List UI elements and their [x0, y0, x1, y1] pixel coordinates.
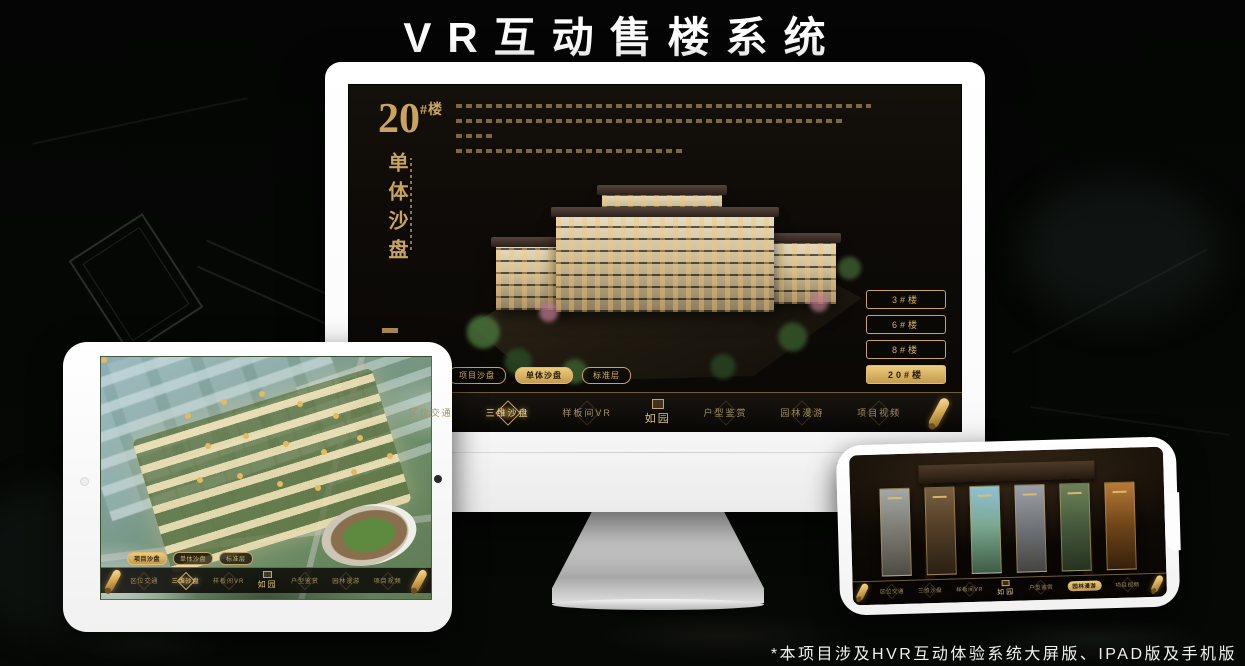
tab-project-sandtable[interactable]: 项目沙盘 — [448, 367, 506, 384]
scene-panel-exterior[interactable] — [969, 485, 1001, 574]
brand-logo-text: 如园 — [645, 410, 671, 426]
block-number-suffix: #楼 — [420, 103, 443, 118]
view-tabs: 项目沙盘 单体沙盘 标准层 — [448, 367, 631, 384]
floor-button-6[interactable]: 6#楼 — [866, 315, 946, 334]
tablet-brand-logo-text: 如园 — [258, 579, 278, 590]
tablet-nav-item-showroom-vr[interactable]: 样板间VR — [213, 576, 244, 585]
tablet-brand-logo[interactable]: 如园 — [258, 571, 278, 590]
map-terrain-blob — [1020, 180, 1220, 320]
map-road-line — [32, 97, 248, 145]
brand-seal-icon — [652, 399, 664, 409]
scene-panel-clubhouse[interactable] — [1104, 481, 1136, 570]
phone-brand-logo[interactable]: 如园 — [997, 579, 1015, 596]
tablet-nav-item-project-video[interactable]: 项目视频 — [374, 576, 402, 585]
phone-navbar: 区位交通 三维沙盘 样板间VR 如园 户型鉴赏 园林漫游 项目视频 — [852, 573, 1166, 603]
tablet-brand-seal-icon — [263, 571, 272, 578]
panorama-gate-beam — [918, 461, 1094, 484]
block-subtitle-english — [410, 158, 412, 250]
tablet-nav-item-3d-sandtable[interactable]: 三维沙盘 — [172, 576, 200, 585]
tablet-scroll-menu-icon-left[interactable] — [104, 568, 122, 593]
scene-panel-courtyard[interactable] — [879, 488, 911, 577]
phone-nav-item-location[interactable]: 区位交通 — [880, 587, 904, 596]
tablet-tab-standard-floor[interactable]: 标准层 — [219, 552, 253, 565]
map-plaque — [69, 213, 204, 355]
floor-button-3[interactable]: 3#楼 — [866, 290, 946, 309]
nav-item-garden-roam[interactable]: 园林漫游 — [780, 406, 824, 419]
phone-brand-logo-text: 如园 — [997, 586, 1015, 596]
tablet-tab-single-sandtable[interactable]: 单体沙盘 — [173, 552, 213, 565]
tablet-scroll-menu-icon-right[interactable] — [410, 568, 428, 593]
phone-notch — [1164, 492, 1181, 550]
map-road-line — [1031, 406, 1229, 436]
nav-item-location[interactable]: 区位交通 — [409, 406, 453, 419]
phone-nav-item-3d-sandtable[interactable]: 三维沙盘 — [918, 586, 942, 595]
footnote-text: *本项目涉及HVR互动体验系统大屏版、IPAD版及手机版 — [771, 640, 1237, 664]
tab-standard-floor[interactable]: 标准层 — [582, 367, 631, 384]
promo-canvas: VR互动售楼系统 20#楼 单体沙盘 — [0, 0, 1245, 666]
nav-item-3d-sandtable[interactable]: 三维沙盘 — [486, 406, 530, 419]
phone-scroll-menu-icon-left[interactable] — [855, 582, 869, 601]
phone-screen: 区位交通 三维沙盘 样板间VR 如园 户型鉴赏 园林漫游 项目视频 — [849, 447, 1167, 606]
tablet-camera — [80, 477, 89, 486]
scene-gallery — [879, 481, 1136, 576]
phone-nav-item-floorplans[interactable]: 户型鉴赏 — [1029, 583, 1053, 592]
block-subtitle-mark — [382, 328, 398, 333]
scene-panel-garden[interactable] — [1059, 483, 1091, 572]
monitor-stand-base — [552, 599, 764, 610]
nav-item-project-video[interactable]: 项目视频 — [857, 406, 901, 419]
floor-button-8[interactable]: 8#楼 — [866, 340, 946, 359]
tablet-tab-project-sandtable[interactable]: 项目沙盘 — [127, 552, 167, 565]
phone-nav-item-project-video[interactable]: 项目视频 — [1115, 580, 1139, 589]
brand-logo[interactable]: 如园 — [645, 399, 671, 426]
block-subtitle: 单体沙盘 — [382, 152, 411, 320]
scene-panel-interior[interactable] — [924, 486, 956, 575]
tablet-device: 项目沙盘 单体沙盘 标准层 区位交通 三维沙盘 样板间VR 如园 户型鉴赏 园林… — [63, 342, 452, 632]
tablet-home-button[interactable] — [434, 475, 442, 483]
phone-scroll-menu-icon-right[interactable] — [1150, 574, 1164, 593]
tablet-nav-item-floorplans[interactable]: 户型鉴赏 — [291, 576, 319, 585]
tablet-navbar: 区位交通 三维沙盘 样板间VR 如园 户型鉴赏 园林漫游 项目视频 — [101, 567, 431, 593]
floor-button-20[interactable]: 20#楼 — [866, 365, 946, 384]
landscape-trees — [444, 150, 880, 396]
page-title: VR互动售楼系统 — [0, 4, 1245, 65]
tab-single-sandtable[interactable]: 单体沙盘 — [515, 367, 573, 384]
phone-nav-item-garden-roam[interactable]: 园林漫游 — [1067, 580, 1101, 591]
tablet-nav-item-location[interactable]: 区位交通 — [130, 576, 158, 585]
floor-selector: 3#楼 6#楼 8#楼 20#楼 — [866, 290, 946, 390]
tablet-view-tabs: 项目沙盘 单体沙盘 标准层 — [127, 552, 253, 565]
phone-brand-seal-icon — [1002, 579, 1010, 585]
phone-device: 区位交通 三维沙盘 样板间VR 如园 户型鉴赏 园林漫游 项目视频 — [836, 436, 1181, 615]
nav-item-showroom-vr[interactable]: 样板间VR — [562, 406, 612, 419]
block-number: 20#楼 — [378, 98, 443, 140]
nav-item-floorplans[interactable]: 户型鉴赏 — [704, 406, 748, 419]
building-render — [444, 150, 880, 396]
scroll-menu-icon-right[interactable] — [927, 396, 951, 429]
tablet-nav-item-garden-roam[interactable]: 园林漫游 — [332, 576, 360, 585]
tablet-screen: 项目沙盘 单体沙盘 标准层 区位交通 三维沙盘 样板间VR 如园 户型鉴赏 园林… — [100, 356, 432, 600]
map-road-line — [206, 240, 344, 303]
phone-nav-item-showroom-vr[interactable]: 样板间VR — [956, 585, 983, 594]
scene-panel-facade[interactable] — [1014, 484, 1046, 573]
